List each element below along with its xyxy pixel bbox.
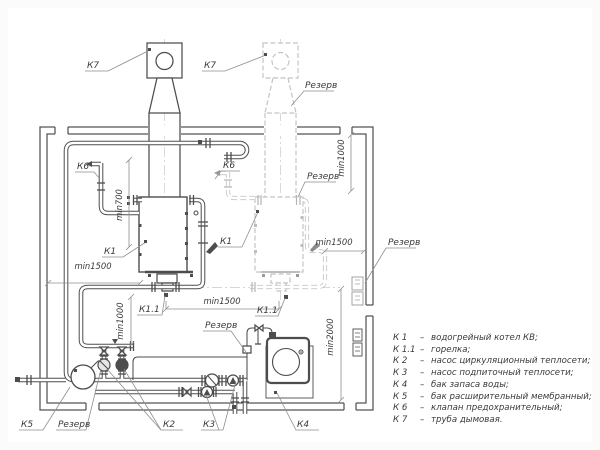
cabinet-2 bbox=[353, 343, 362, 356]
label-k6-left: К6 bbox=[77, 162, 89, 172]
label-k11-right: К1.1 bbox=[257, 306, 278, 316]
legend-desc: труба дымовая. bbox=[431, 415, 503, 427]
legend-separator: – bbox=[420, 380, 431, 392]
tank-k4 bbox=[266, 332, 313, 398]
label-k7-right: К7 bbox=[204, 61, 216, 71]
legend-key: К 6 bbox=[393, 403, 420, 415]
legend-key: К 2 bbox=[393, 356, 420, 368]
boiler-body-reserve bbox=[255, 197, 303, 272]
legend-desc: водогрейный котел КВ; bbox=[431, 333, 538, 345]
legend-desc: клапан предохранительный; bbox=[431, 403, 563, 415]
legend-key: К 4 bbox=[393, 380, 420, 392]
burner-k11 bbox=[157, 274, 177, 283]
legend-separator: – bbox=[420, 368, 431, 380]
dim-min1000-bottom: min1000 bbox=[115, 302, 125, 339]
legend-key: К 7 bbox=[393, 415, 420, 427]
legend-item: К 3–насос подпиточный теплосети; bbox=[393, 368, 599, 380]
tank-manhole bbox=[273, 349, 300, 376]
legend-desc: бак запаса воды; bbox=[431, 380, 509, 392]
legend-item: К 1.1–горелка; bbox=[393, 345, 599, 357]
label-reserve-wall: Резерв bbox=[388, 238, 420, 248]
dim-min2000: min2000 bbox=[325, 318, 335, 355]
pump-k2-duty bbox=[116, 359, 128, 371]
boiler-body bbox=[139, 197, 187, 272]
label-k11-left: К1.1 bbox=[139, 305, 160, 315]
legend-separator: – bbox=[420, 415, 431, 427]
legend-item: К 1–водогрейный котел КВ; bbox=[393, 333, 599, 345]
legend-item: К 4–бак запаса воды; bbox=[393, 380, 599, 392]
legend-key: К 1 bbox=[393, 333, 420, 345]
legend-separator: – bbox=[420, 392, 431, 404]
label-k1-left: К1 bbox=[104, 247, 116, 257]
legend-key: К 3 bbox=[393, 368, 420, 380]
legend-separator: – bbox=[420, 333, 431, 345]
burner-k11-reserve bbox=[271, 274, 290, 283]
cabinet-1 bbox=[353, 329, 362, 341]
label-reserve-pump: Резерв bbox=[58, 420, 90, 430]
legend-key: К 5 bbox=[393, 392, 420, 404]
label-k4: К4 bbox=[297, 420, 309, 430]
cabinet-reserve-1 bbox=[352, 277, 363, 290]
label-k6-right: К6 bbox=[223, 161, 235, 171]
legend-item: К 7–труба дымовая. bbox=[393, 415, 599, 427]
legend-separator: – bbox=[420, 345, 431, 357]
legend-separator: – bbox=[420, 403, 431, 415]
dim-min1500-right: min1500 bbox=[315, 237, 352, 247]
dim-min700: min700 bbox=[114, 189, 124, 221]
electrical-cabinets bbox=[352, 277, 363, 356]
legend-item: К 5–бак расширительный мембранный; bbox=[393, 392, 599, 404]
label-k1-right: К1 bbox=[220, 237, 232, 247]
dim-min1500-center: min1500 bbox=[203, 296, 240, 306]
label-reserve-chimney: Резерв bbox=[305, 81, 337, 91]
legend-desc: бак расширительный мембранный; bbox=[431, 392, 592, 404]
label-k5: К5 bbox=[21, 420, 33, 430]
pipe-fittings bbox=[15, 138, 263, 409]
chimney-outlet bbox=[156, 53, 173, 70]
legend-key: К 1.1 bbox=[393, 345, 420, 357]
legend-item: К 6–клапан предохранительный; bbox=[393, 403, 599, 415]
chimney-funnel bbox=[149, 78, 180, 113]
label-k7-left: К7 bbox=[87, 61, 99, 71]
label-reserve-top: Резерв bbox=[307, 172, 339, 182]
legend: К 1–водогрейный котел КВ; К 1.1–горелка;… bbox=[393, 333, 599, 427]
legend-item: К 2–насос циркуляционный теплосети; bbox=[393, 356, 599, 368]
legend-desc: насос циркуляционный теплосети; bbox=[431, 356, 590, 368]
legend-separator: – bbox=[420, 356, 431, 368]
cabinet-reserve-2 bbox=[352, 292, 363, 305]
drawing-canvas: min700 min1000 min1500 min1500 min1500 m… bbox=[0, 0, 600, 450]
expansion-tank bbox=[71, 365, 95, 389]
legend-desc: насос подпиточный теплосети; bbox=[431, 368, 574, 380]
boiler-k1-reserve bbox=[254, 197, 304, 299]
boiler-k1-left bbox=[139, 197, 199, 297]
label-k2: К2 bbox=[163, 420, 175, 430]
label-k3: К3 bbox=[203, 420, 215, 430]
label-reserve-makeup: Резерв bbox=[205, 321, 237, 331]
dim-min1000-top: min1000 bbox=[336, 139, 346, 176]
legend-desc: горелка; bbox=[431, 345, 470, 357]
valve-lever bbox=[206, 242, 218, 254]
tank-k5 bbox=[71, 365, 95, 389]
dim-min1500-left: min1500 bbox=[74, 261, 111, 271]
